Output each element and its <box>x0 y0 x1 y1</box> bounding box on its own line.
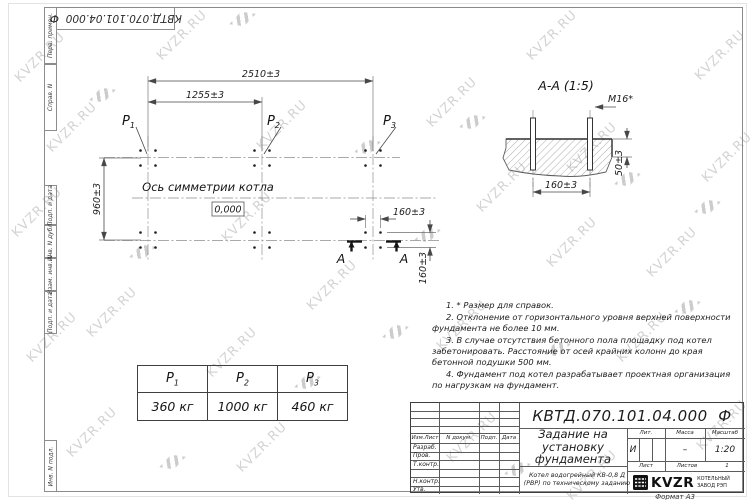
anchor-bolt-dot <box>154 246 157 249</box>
company-logo: KVZR КОТЕЛЬНЫЙ ЗАВОД РЭП <box>633 473 743 492</box>
anchor-bolt-dot <box>364 231 367 234</box>
anchor-bolt-dot <box>364 246 367 249</box>
mass-label: Масса <box>665 428 705 438</box>
sheets-value: 1 <box>713 461 741 471</box>
title-block-doc-number: КВТД.070.101.04.000 Ф <box>519 403 745 428</box>
sheet-label: Лист <box>627 461 665 471</box>
dim-height: 960±3 <box>92 183 103 215</box>
note-4: 4. Фундамент под котел разрабатывает про… <box>432 369 740 391</box>
anchor-bolt-dot <box>253 246 256 249</box>
col-date: Дата <box>499 433 519 443</box>
mass-value: – <box>665 438 705 461</box>
load-table-header-row: P1 P2 P3 <box>138 366 348 393</box>
row-ncontrol: Н.контр. <box>411 477 441 486</box>
load-value-p2: 1000 кг <box>208 393 278 421</box>
section-view: А-А (1:5) M16* 50±3 160±3 <box>503 78 633 197</box>
col-signature: Подп. <box>479 433 499 443</box>
load-table: P1 P2 P3 360 кг 1000 кг 460 кг <box>137 365 348 421</box>
anchor-stud-left <box>531 118 536 170</box>
lit-value: И <box>627 438 639 461</box>
load-value-p3: 460 кг <box>278 393 348 421</box>
sheets-label: Листов <box>665 461 709 471</box>
format-label: Формат А3 <box>615 493 735 500</box>
load-table-value-row: 360 кг 1000 кг 460 кг <box>138 393 348 421</box>
plan-view: 2510±3 1255±3 960±3 P1 P2 P3 Ось симметр… <box>92 69 440 284</box>
section-letter-right: А <box>399 251 409 266</box>
anchor-bolt-dot <box>253 231 256 234</box>
col-izm-list: Изм.Лист <box>411 433 439 443</box>
load-table-header-p1: P1 <box>138 366 208 393</box>
title-block: КВТД.070.101.04.000 Ф Изм.Лист N докум. … <box>410 402 744 493</box>
logo-text: KVZR <box>651 475 694 491</box>
drawing-title: Задание на установку фундамента <box>519 428 627 466</box>
anchor-bolt-dot <box>379 164 382 167</box>
anchor-bolt-dot <box>253 164 256 167</box>
logo-caption: КОТЕЛЬНЫЙ ЗАВОД РЭП <box>697 476 733 489</box>
anchor-bolts <box>139 149 382 249</box>
dim-total-width: 2510±3 <box>242 69 280 80</box>
notes-block: 1. * Размер для справок. 2. Отклонение о… <box>432 300 740 392</box>
row-approved: Утв. <box>411 486 441 495</box>
point-label-p1: P1 <box>122 114 135 130</box>
anchor-bolt-dot <box>379 246 382 249</box>
row-tcontrol: Т.контр. <box>411 460 441 469</box>
symmetry-axis-label: Ось симметрии котла <box>142 180 274 194</box>
anchor-bolt-dot <box>139 246 142 249</box>
anchor-bolt-dot <box>139 164 142 167</box>
anchor-bolt-dot <box>154 164 157 167</box>
load-value-p1: 360 кг <box>138 393 208 421</box>
anchor-bolt-dot <box>268 164 271 167</box>
row-developed: Разраб. <box>411 443 441 452</box>
dim-stud-protrusion: 50±3 <box>614 150 625 176</box>
load-table-header-p3: P3 <box>278 366 348 393</box>
dim-bolt-spacing-h: 160±3 <box>393 207 425 218</box>
load-table-header-p2: P2 <box>208 366 278 393</box>
section-cut-marks: А А <box>336 242 409 267</box>
anchor-bolt-dot <box>268 231 271 234</box>
scale-value: 1:20 <box>705 438 745 461</box>
anchor-bolt-dot <box>268 246 271 249</box>
point-label-p3: P3 <box>383 114 396 130</box>
point-label-p2: P2 <box>267 114 280 130</box>
anchor-bolt-dot <box>364 149 367 152</box>
row-checked: Пров. <box>411 452 441 461</box>
drawing-sheet: KVZR.RUKVZR.RUKVZR.RUKVZR.RUKVZR.RUKVZR.… <box>0 0 750 500</box>
thread-label: M16* <box>608 94 633 105</box>
kvzr-logo-icon <box>633 475 648 490</box>
lit-label: Лит. <box>627 428 665 438</box>
anchor-bolt-dot <box>379 231 382 234</box>
anchor-bolt-dot <box>253 149 256 152</box>
anchor-bolt-dot <box>268 149 271 152</box>
note-3: 3. В случае отсутствия бетонного пола пл… <box>432 335 740 368</box>
col-doc-number: N докум. <box>439 433 479 443</box>
row-empty <box>411 469 441 478</box>
concrete-foundation <box>503 139 612 177</box>
note-2: 2. Отклонение от горизонтального уровня … <box>432 312 740 334</box>
dim-bolt-spacing-v: 160±3 <box>418 252 429 284</box>
scale-label: Масштаб <box>705 428 745 438</box>
anchor-stud-right <box>588 118 593 170</box>
section-letter-left: А <box>336 251 346 266</box>
anchor-bolt-dot <box>364 164 367 167</box>
note-1: 1. * Размер для справок. <box>432 300 740 311</box>
section-view-title: А-А (1:5) <box>537 78 593 93</box>
anchor-bolt-dot <box>139 231 142 234</box>
anchor-bolt-dot <box>154 231 157 234</box>
dim-half-width: 1255±3 <box>186 90 224 101</box>
level-mark: 0,000 <box>214 205 241 216</box>
drawing-subtitle: Котел водогрейный КВ-0,8 Д (РВР) по техн… <box>519 466 635 494</box>
dim-stud-spacing: 160±3 <box>545 180 577 191</box>
anchor-bolt-dot <box>154 149 157 152</box>
anchor-bolt-dot <box>139 149 142 152</box>
